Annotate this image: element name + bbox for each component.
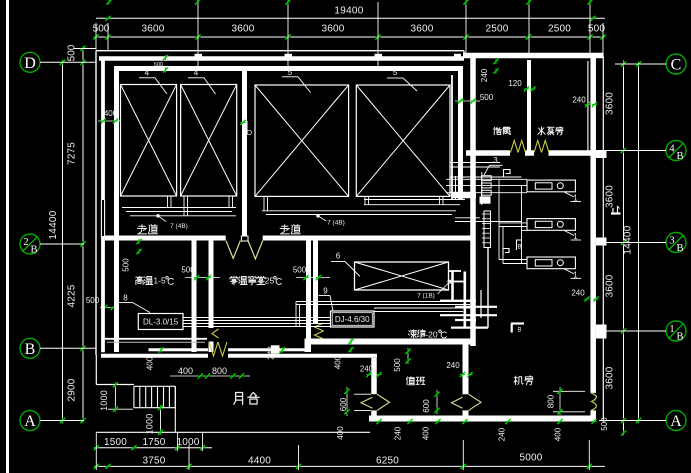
svg-text:3600: 3600 — [605, 92, 616, 115]
svg-text:3600: 3600 — [605, 274, 616, 297]
svg-text:240: 240 — [572, 96, 586, 105]
svg-text:1000: 1000 — [176, 437, 199, 448]
svg-text:14400: 14400 — [623, 225, 634, 254]
svg-text:1750: 1750 — [142, 437, 165, 448]
svg-text:500: 500 — [122, 258, 131, 272]
svg-text:7 (4B): 7 (4B) — [327, 220, 345, 227]
svg-text:3600: 3600 — [141, 24, 164, 35]
svg-text:4225: 4225 — [67, 284, 78, 307]
svg-text:1: 1 — [573, 232, 578, 241]
svg-text:D: D — [24, 55, 36, 72]
svg-text:7275: 7275 — [67, 142, 78, 165]
svg-text:1: 1 — [669, 324, 674, 335]
svg-text:B: B — [517, 328, 521, 334]
svg-text:8: 8 — [123, 294, 128, 303]
svg-text:3600: 3600 — [231, 24, 254, 35]
svg-text:1: 1 — [573, 194, 578, 203]
svg-text:600: 600 — [422, 399, 431, 413]
svg-text:240: 240 — [571, 289, 585, 298]
svg-text:2900: 2900 — [67, 378, 78, 401]
svg-text:400: 400 — [422, 426, 431, 440]
svg-text:500: 500 — [154, 62, 163, 68]
svg-text:5: 5 — [288, 68, 293, 77]
svg-text:B: B — [676, 332, 683, 343]
svg-text:6: 6 — [336, 252, 341, 261]
svg-text:500: 500 — [600, 417, 609, 431]
svg-text:3600: 3600 — [605, 366, 616, 389]
svg-text:B: B — [676, 243, 683, 254]
svg-text:5: 5 — [393, 68, 398, 77]
svg-text:500: 500 — [293, 266, 307, 275]
svg-text:400: 400 — [554, 427, 563, 441]
svg-text:DL-3.0/15: DL-3.0/15 — [143, 318, 179, 327]
svg-text:3: 3 — [669, 236, 674, 247]
svg-text:500: 500 — [67, 44, 78, 61]
svg-text:2500: 2500 — [485, 24, 508, 35]
svg-text:500: 500 — [393, 358, 402, 372]
svg-text:1500: 1500 — [104, 437, 127, 448]
svg-text:14400: 14400 — [48, 210, 59, 239]
svg-text:1: 1 — [573, 270, 578, 279]
svg-text:4: 4 — [669, 144, 675, 155]
svg-text:240: 240 — [480, 68, 489, 82]
svg-text:D: D — [247, 128, 253, 137]
svg-text:400: 400 — [178, 366, 193, 376]
svg-text:DJ-4.6/30: DJ-4.6/30 — [335, 315, 370, 324]
svg-text:25: 25 — [265, 276, 275, 286]
svg-text:1-5: 1-5 — [153, 276, 166, 286]
svg-text:6250: 6250 — [376, 456, 399, 467]
svg-text:240: 240 — [267, 346, 276, 360]
svg-text:800: 800 — [212, 366, 227, 376]
svg-text:B: B — [30, 245, 37, 256]
svg-text:1000: 1000 — [99, 390, 109, 411]
svg-text:3600: 3600 — [410, 24, 433, 35]
svg-text:B: B — [517, 245, 521, 251]
svg-text:120: 120 — [508, 79, 522, 88]
svg-text:3600: 3600 — [321, 24, 344, 35]
svg-text:240: 240 — [394, 426, 403, 440]
svg-text:B: B — [25, 341, 36, 358]
svg-text:19400: 19400 — [334, 6, 363, 17]
svg-text:1000: 1000 — [145, 414, 155, 435]
svg-text:7 (1B): 7 (1B) — [417, 293, 435, 300]
svg-text:240: 240 — [446, 361, 460, 370]
svg-text:400: 400 — [146, 356, 155, 370]
svg-text:2500: 2500 — [548, 24, 571, 35]
svg-text:2: 2 — [23, 237, 28, 248]
svg-text:A: A — [670, 413, 682, 430]
svg-text:A: A — [24, 413, 36, 430]
svg-text:5000: 5000 — [519, 453, 542, 464]
svg-text:3750: 3750 — [142, 456, 165, 467]
svg-text:400: 400 — [104, 109, 118, 118]
svg-text:4: 4 — [145, 69, 150, 78]
svg-text:3: 3 — [493, 156, 498, 165]
svg-text:500: 500 — [181, 266, 195, 275]
svg-text:800: 800 — [547, 394, 556, 408]
svg-text:4: 4 — [194, 69, 199, 78]
svg-text:500: 500 — [86, 296, 100, 305]
svg-text:4400: 4400 — [248, 456, 271, 467]
svg-text:500: 500 — [93, 24, 110, 35]
svg-text:7 (4B): 7 (4B) — [170, 223, 188, 230]
svg-text:240: 240 — [498, 427, 507, 441]
svg-text:C: C — [671, 57, 682, 74]
svg-text:400: 400 — [334, 355, 343, 369]
svg-text:500: 500 — [480, 93, 494, 102]
svg-text:9: 9 — [323, 287, 328, 296]
svg-text:3600: 3600 — [605, 185, 616, 208]
svg-text:-20: -20 — [425, 330, 438, 340]
svg-text:B: B — [676, 151, 683, 162]
